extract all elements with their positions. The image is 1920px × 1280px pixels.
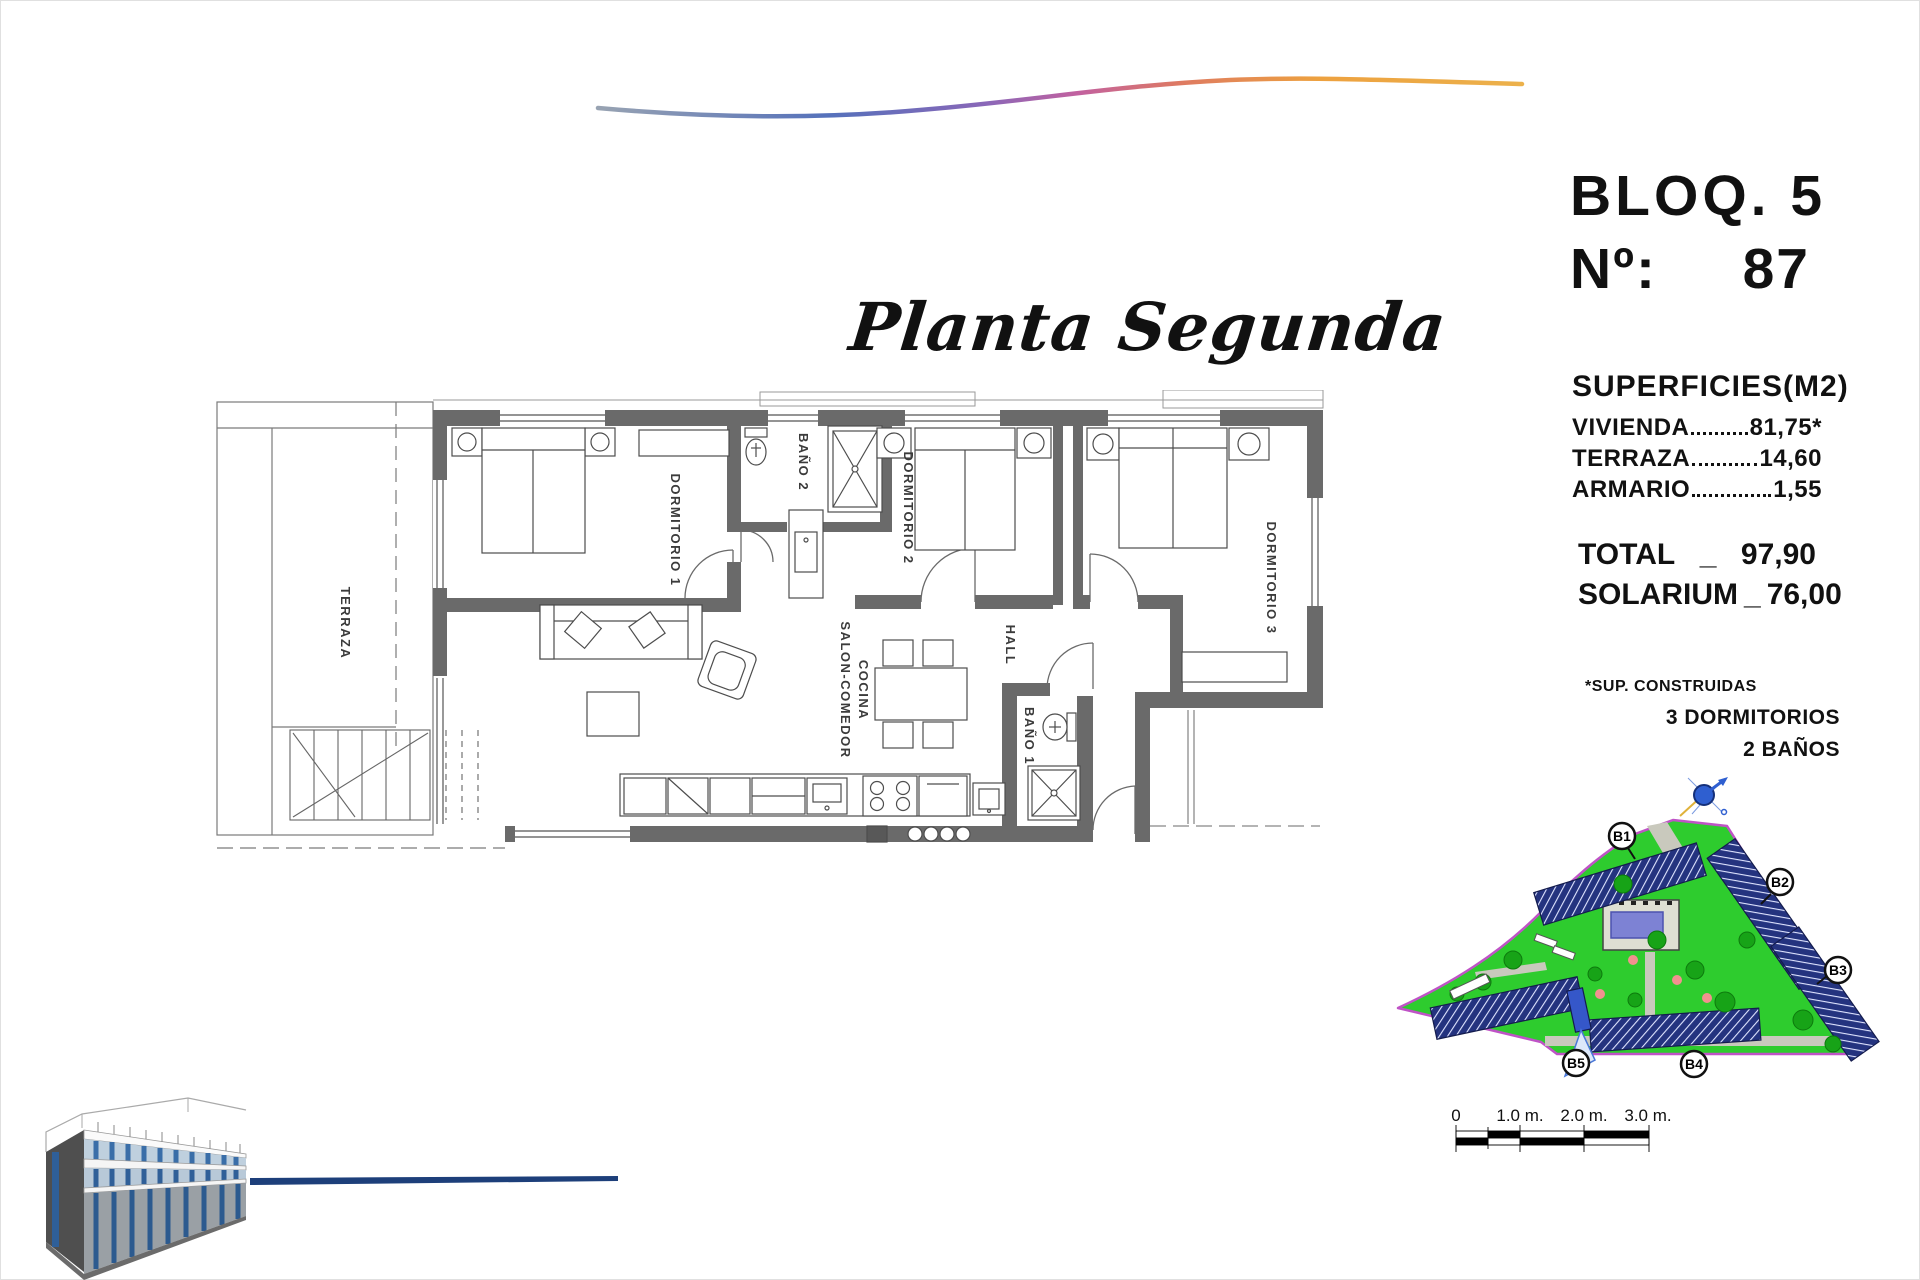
surfaces-block: SUPERFICIES(M2) VIVIENDA 81,75* TERRAZA …	[1572, 370, 1822, 504]
laundry-sink	[973, 783, 1005, 815]
marker-b3: B3	[1829, 962, 1847, 978]
scale-tick-0: 0	[1451, 1106, 1460, 1125]
label-terraza: TERRAZA	[338, 587, 353, 660]
footnote: *SUP. CONSTRUIDAS	[1585, 678, 1757, 696]
stove	[863, 776, 917, 816]
kitchen-counter	[620, 774, 970, 816]
bathrooms-count: 2 BAÑOS	[1640, 738, 1840, 762]
solarium-row: SOLARIUM _ 76,00	[1578, 578, 1816, 612]
totals-block: TOTAL _ 97,90 SOLARIUM _ 76,00	[1578, 538, 1816, 618]
swoosh-path	[598, 79, 1522, 117]
kitchen-sink	[807, 778, 847, 814]
dotted-leader	[1692, 494, 1771, 497]
furniture	[452, 426, 1287, 842]
blue-accent-line	[250, 1176, 618, 1185]
wardrobe	[1182, 652, 1287, 682]
label-dormitorio-1: DORMITORIO 1	[668, 473, 683, 586]
gradient-swoosh	[590, 62, 1530, 132]
upper-structure-lines	[433, 390, 1323, 408]
dotted-leader	[1692, 463, 1757, 466]
surface-label: ARMARIO	[1572, 476, 1690, 504]
total-value: 97,90	[1741, 538, 1816, 572]
label-dormitorio-3: DORMITORIO 3	[1264, 521, 1279, 634]
dining-set	[875, 640, 967, 748]
surface-row-armario: ARMARIO 1,55	[1572, 476, 1822, 504]
surface-value: 1,55	[1773, 476, 1822, 504]
vanity-sink	[789, 510, 823, 598]
coffee-table	[587, 692, 639, 736]
label-hall: HALL	[1003, 625, 1018, 666]
label-bano-2: BAÑO 2	[796, 433, 811, 491]
scale-segments	[1456, 1125, 1649, 1152]
toilet-1	[1043, 713, 1076, 741]
unit-number-value: 87	[1743, 241, 1810, 298]
label-salon-1: SALON-COMEDOR	[838, 621, 853, 758]
marker-b2: B2	[1771, 874, 1789, 890]
scale-tick-3: 3.0 m.	[1624, 1106, 1671, 1125]
surface-value: 14,60	[1759, 445, 1822, 473]
toilet-2	[745, 428, 767, 465]
scale-tick-1: 1.0 m.	[1496, 1106, 1543, 1125]
solarium-label: SOLARIUM	[1578, 578, 1738, 612]
total-row: TOTAL _ 97,90	[1578, 538, 1816, 572]
dotted-leader	[1691, 432, 1747, 435]
marker-b4: B4	[1685, 1056, 1703, 1072]
plan-title: Planta Segunda	[846, 288, 1354, 366]
building-render	[38, 1092, 638, 1280]
label-salon-2: COCINA	[856, 660, 871, 720]
stairs	[290, 730, 478, 820]
total-label: TOTAL	[1578, 538, 1675, 572]
surfaces-title: SUPERFICIES(M2)	[1572, 370, 1822, 404]
pool	[1603, 900, 1679, 950]
solarium-value: 76,00	[1767, 578, 1842, 612]
unit-number-label: Nº:	[1570, 241, 1657, 298]
scale-tick-2: 2.0 m.	[1560, 1106, 1607, 1125]
sofa	[540, 605, 702, 659]
shower-1	[1028, 766, 1080, 820]
surface-label: VIVIENDA	[1572, 414, 1689, 442]
block-header: BLOQ. 5 Nº: 87	[1570, 168, 1838, 298]
scale-bar: 0 1.0 m. 2.0 m. 3.0 m.	[1448, 1105, 1688, 1165]
armchair	[696, 639, 758, 701]
shower-2	[828, 426, 882, 512]
building-3d	[46, 1098, 246, 1280]
bed-double-3	[1087, 428, 1287, 682]
bedrooms-count: 3 DORMITORIOS	[1640, 706, 1840, 730]
marker-b1: B1	[1613, 828, 1631, 844]
block-label: BLOQ. 5	[1570, 168, 1838, 225]
site-plan: B1 B2 B3 B4 B5	[1395, 812, 1895, 1112]
terrace-outline	[217, 402, 505, 848]
unit-number-row: Nº: 87	[1570, 241, 1838, 298]
surface-row-vivienda: VIVIENDA 81,75*	[1572, 414, 1822, 442]
surface-label: TERRAZA	[1572, 445, 1690, 473]
floor-plan: TERRAZA DORMITORIO 1 BAÑO 2 DORMITORIO 2…	[215, 390, 1335, 860]
label-dormitorio-2: DORMITORIO 2	[901, 451, 916, 564]
floorplan-sheet: { "header": { "block": "BLOQ. 5", "numbe…	[0, 0, 1920, 1280]
total-separator: _	[1700, 538, 1717, 572]
bed-double-1	[452, 428, 729, 553]
marker-b5: B5	[1567, 1055, 1585, 1071]
solarium-separator: _	[1744, 578, 1761, 612]
surface-value: 81,75*	[1750, 414, 1822, 442]
surface-row-terraza: TERRAZA 14,60	[1572, 445, 1822, 473]
label-bano-1: BAÑO 1	[1022, 707, 1037, 765]
fridge	[919, 776, 967, 816]
